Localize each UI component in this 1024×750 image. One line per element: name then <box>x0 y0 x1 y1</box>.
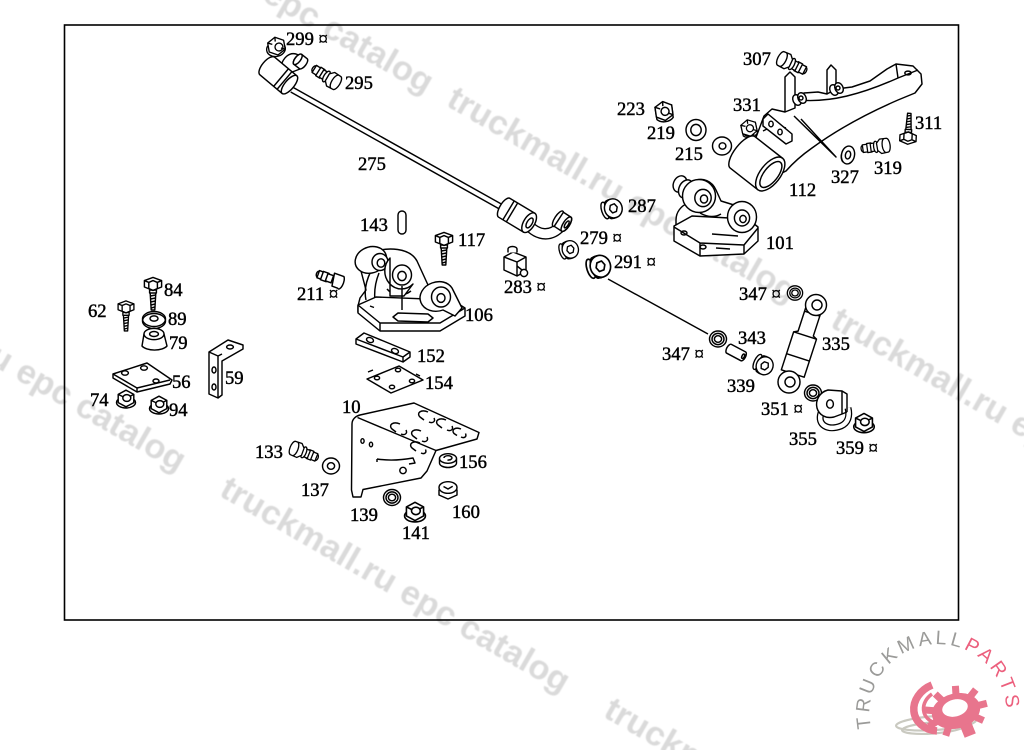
svg-text:359 ¤: 359 ¤ <box>836 438 878 459</box>
svg-text:truckmall.ru epc catalog: truckmall.ru epc catalog <box>78 0 441 101</box>
svg-text:347 ¤: 347 ¤ <box>739 284 781 305</box>
svg-text:62: 62 <box>88 301 107 322</box>
svg-text:275: 275 <box>358 154 386 175</box>
svg-text:137: 137 <box>301 480 329 501</box>
svg-text:160: 160 <box>452 502 480 523</box>
svg-text:283 ¤: 283 ¤ <box>504 277 546 298</box>
svg-text:141: 141 <box>402 523 430 544</box>
svg-text:152: 152 <box>417 346 445 367</box>
svg-text:56: 56 <box>172 372 191 393</box>
svg-text:339: 339 <box>727 376 755 397</box>
svg-text:79: 79 <box>169 333 188 354</box>
svg-text:355: 355 <box>789 429 817 450</box>
svg-text:311: 311 <box>915 113 942 134</box>
svg-text:291 ¤: 291 ¤ <box>614 252 656 273</box>
svg-text:74: 74 <box>90 390 109 411</box>
svg-text:117: 117 <box>458 230 485 251</box>
svg-text:154: 154 <box>425 373 453 394</box>
svg-text:133: 133 <box>255 442 283 463</box>
svg-text:59: 59 <box>225 368 244 389</box>
svg-text:219: 219 <box>647 123 675 144</box>
svg-text:143: 143 <box>360 215 388 236</box>
svg-text:223: 223 <box>617 99 645 120</box>
svg-text:truckmall.ru epc catalog: truckmall.ru epc catalog <box>825 300 1024 531</box>
svg-text:101: 101 <box>766 233 794 254</box>
svg-text:139: 139 <box>350 505 378 526</box>
svg-text:89: 89 <box>168 309 187 330</box>
svg-text:279 ¤: 279 ¤ <box>580 228 622 249</box>
svg-text:295: 295 <box>345 73 373 94</box>
svg-text:156: 156 <box>459 452 487 473</box>
svg-text:319: 319 <box>874 158 902 179</box>
svg-text:211 ¤: 211 ¤ <box>297 284 338 305</box>
svg-text:347 ¤: 347 ¤ <box>662 344 704 365</box>
svg-text:307: 307 <box>743 49 771 70</box>
svg-text:343: 343 <box>738 328 766 349</box>
svg-text:106: 106 <box>465 305 493 326</box>
svg-text:287: 287 <box>628 196 656 217</box>
svg-text:112: 112 <box>789 180 816 201</box>
svg-text:84: 84 <box>164 280 183 301</box>
svg-text:331: 331 <box>733 95 761 116</box>
svg-text:94: 94 <box>169 400 188 421</box>
svg-text:10: 10 <box>342 397 361 418</box>
svg-text:351 ¤: 351 ¤ <box>761 399 803 420</box>
svg-text:335: 335 <box>822 334 850 355</box>
svg-text:215: 215 <box>675 144 703 165</box>
svg-text:299 ¤: 299 ¤ <box>286 29 328 50</box>
svg-text:327: 327 <box>831 167 859 188</box>
